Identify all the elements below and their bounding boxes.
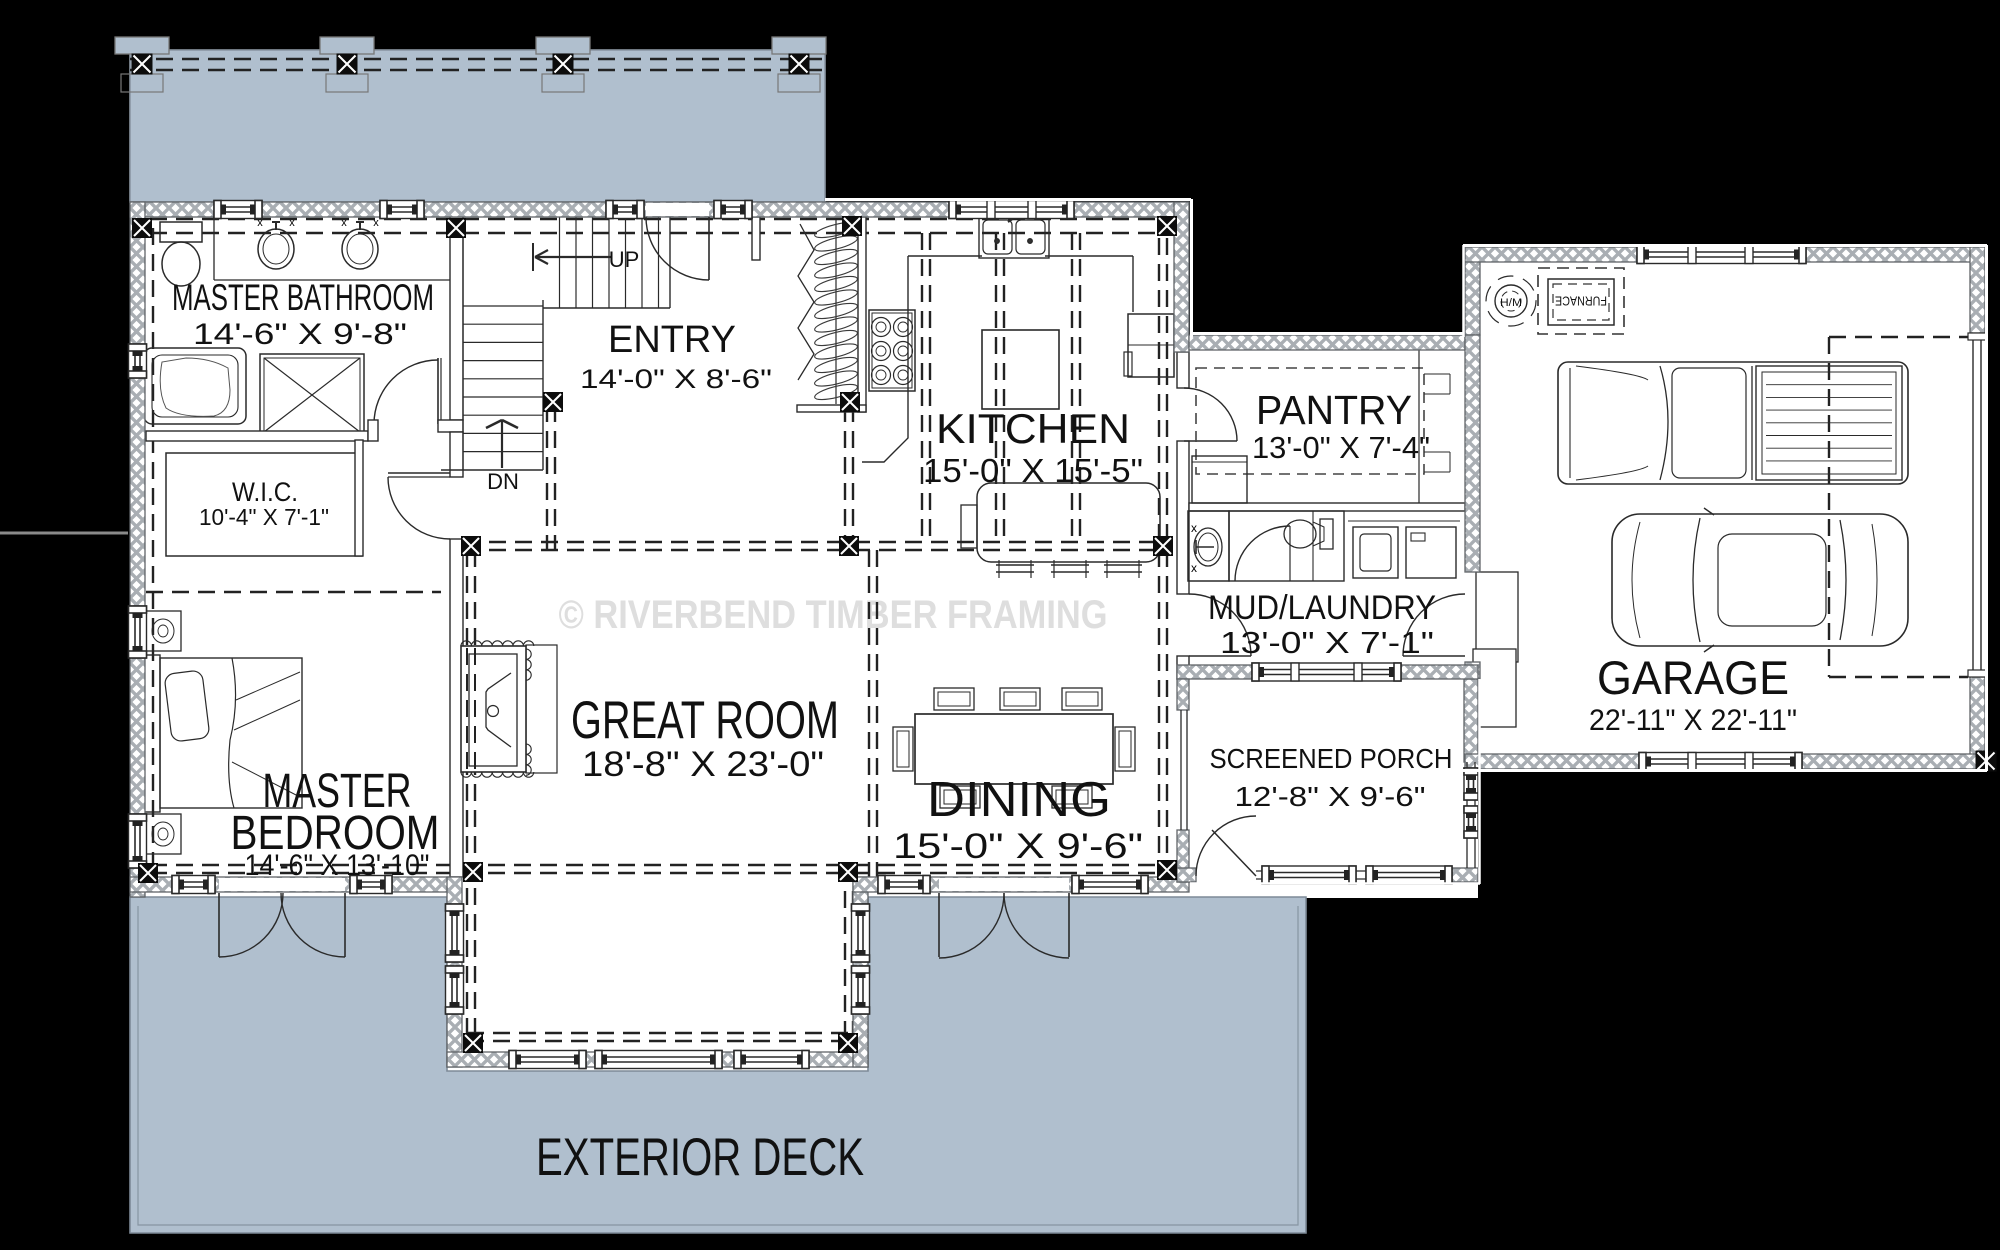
svg-text:GARAGE: GARAGE [1597, 651, 1789, 704]
svg-text:14'-6" X 13'-10": 14'-6" X 13'-10" [245, 849, 430, 882]
svg-text:x: x [289, 217, 295, 229]
svg-text:ENTRY: ENTRY [608, 319, 736, 361]
svg-text:10'-4" X 7'-1": 10'-4" X 7'-1" [199, 504, 329, 530]
svg-text:14'-0" X 8'-6": 14'-0" X 8'-6" [580, 364, 772, 394]
svg-text:© RIVERBEND TIMBER FRAMING: © RIVERBEND TIMBER FRAMING [559, 593, 1108, 637]
svg-text:MUD/LAUNDRY: MUD/LAUNDRY [1208, 589, 1436, 627]
svg-text:MASTER BATHROOM: MASTER BATHROOM [172, 277, 434, 318]
svg-text:14'-6" X 9'-8": 14'-6" X 9'-8" [193, 318, 407, 351]
svg-text:22'-11" X 22'-11": 22'-11" X 22'-11" [1589, 704, 1797, 737]
svg-text:13'-0" X 7'-4": 13'-0" X 7'-4" [1252, 430, 1430, 465]
svg-text:PANTRY: PANTRY [1256, 387, 1412, 433]
svg-text:GREAT ROOM: GREAT ROOM [571, 691, 839, 750]
svg-text:EXTERIOR DECK: EXTERIOR DECK [536, 1128, 864, 1187]
svg-text:UP: UP [609, 247, 640, 272]
svg-text:x: x [1191, 521, 1197, 535]
svg-text:SCREENED PORCH: SCREENED PORCH [1210, 743, 1453, 774]
svg-text:15'-0" X 15'-5": 15'-0" X 15'-5" [923, 452, 1143, 489]
svg-text:KITCHEN: KITCHEN [936, 405, 1130, 452]
svg-text:x: x [373, 217, 379, 229]
svg-text:18'-8" X 23'-0": 18'-8" X 23'-0" [582, 745, 824, 784]
svg-text:12'-8" X 9'-6": 12'-8" X 9'-6" [1235, 781, 1426, 812]
svg-text:15'-0" X 9'-6": 15'-0" X 9'-6" [893, 827, 1143, 866]
svg-text:W.I.C.: W.I.C. [232, 477, 298, 507]
svg-text:DN: DN [487, 469, 519, 494]
svg-text:H/M: H/M [1500, 297, 1522, 309]
svg-text:DINING: DINING [927, 773, 1111, 827]
svg-text:x: x [341, 217, 347, 229]
svg-text:x: x [1191, 561, 1197, 575]
svg-text:13'-0" X 7'-1": 13'-0" X 7'-1" [1220, 625, 1434, 660]
svg-text:FURNACE: FURNACE [1555, 294, 1607, 309]
